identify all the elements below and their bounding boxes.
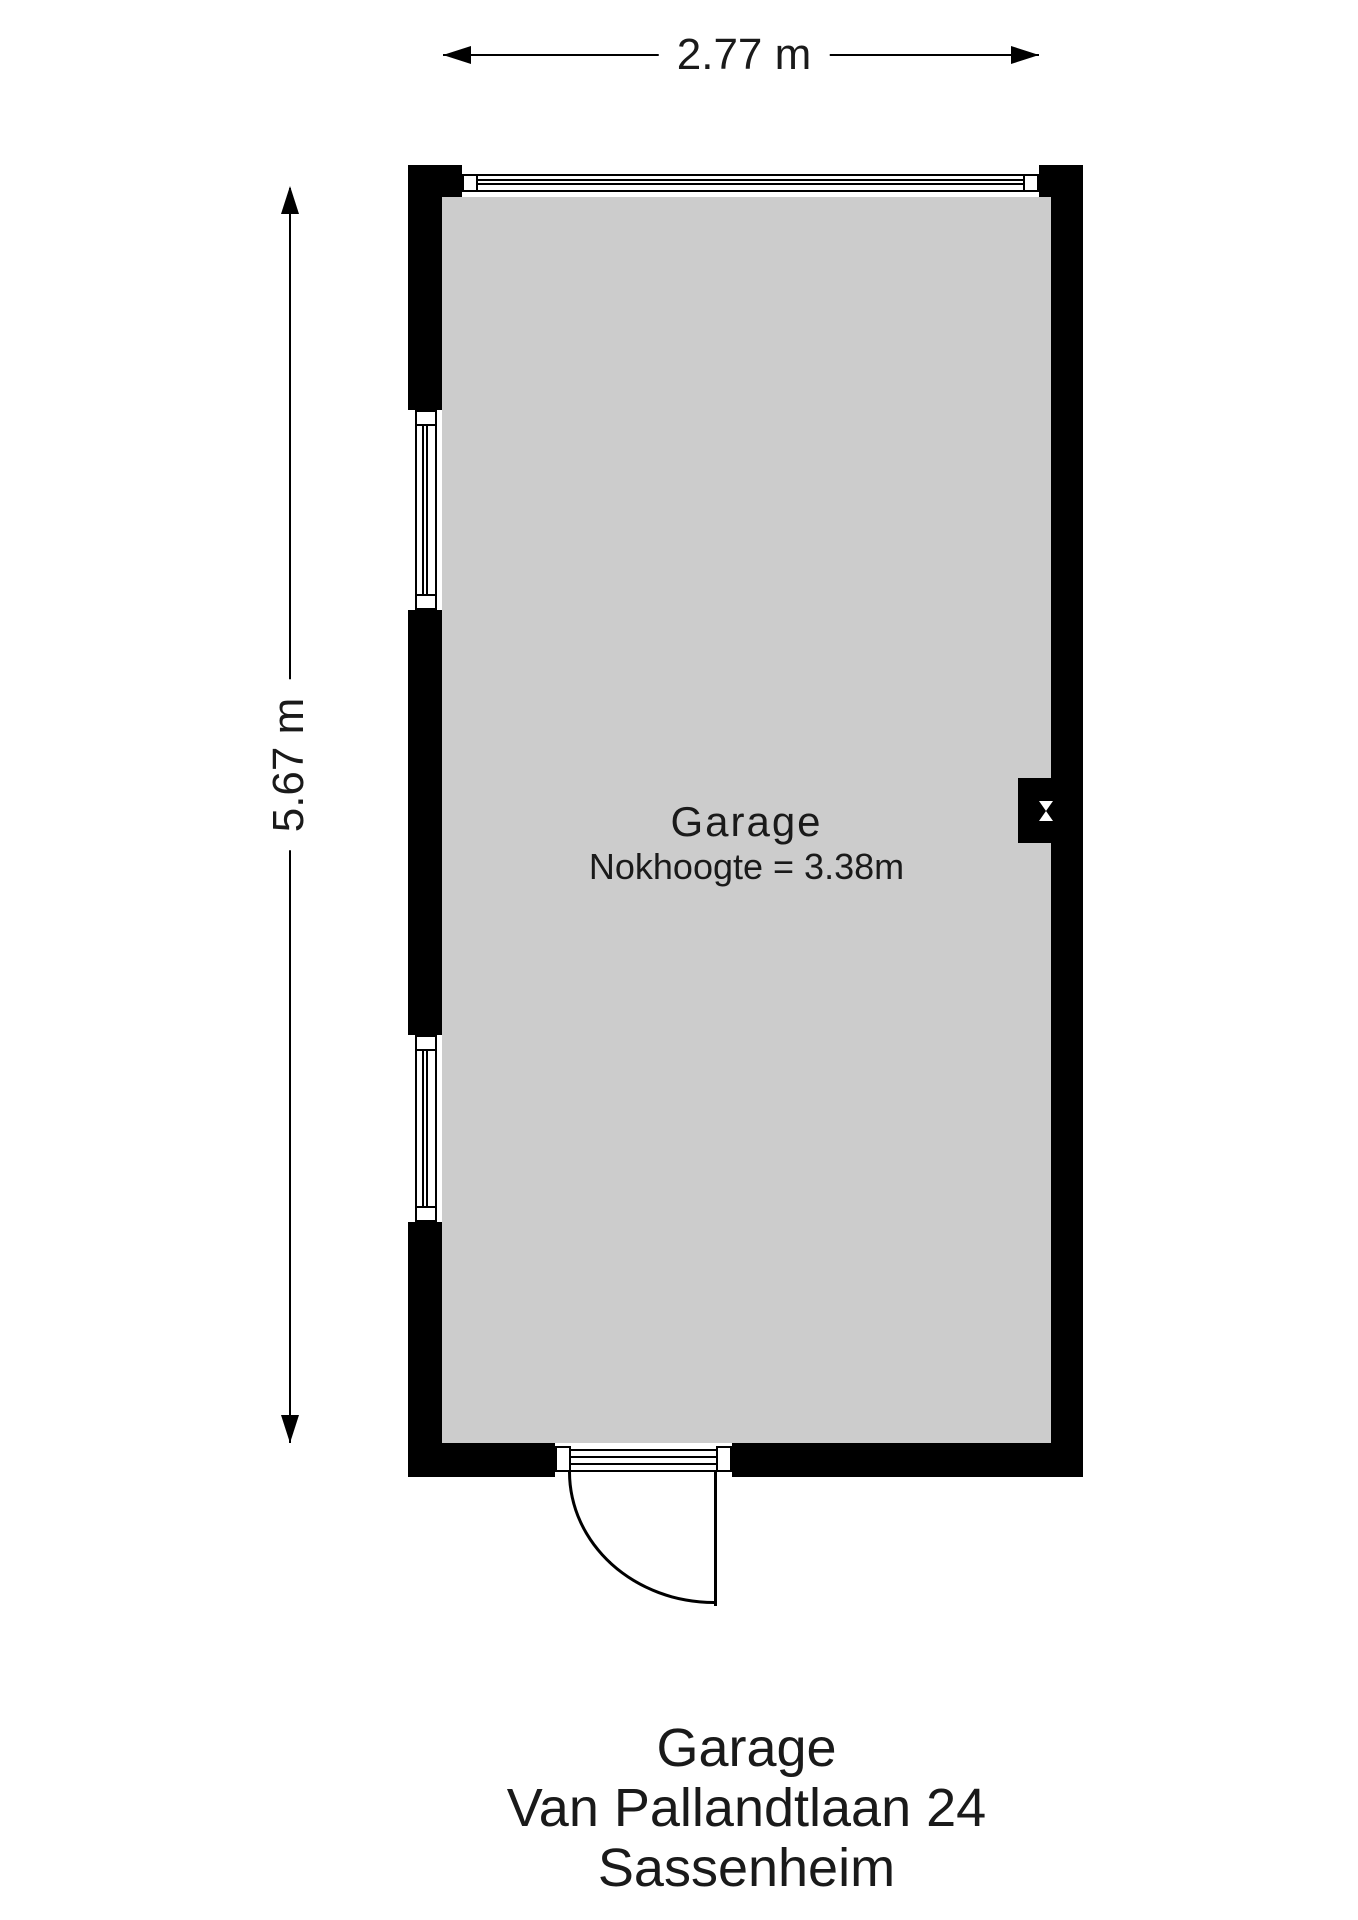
door-threshold [571, 1449, 716, 1472]
door-post-right [716, 1446, 732, 1472]
wall-left-middle [408, 610, 442, 1035]
window-glass-line [426, 426, 428, 594]
window-glass-line [422, 426, 424, 594]
window-glass-line [422, 1051, 424, 1206]
room-name-label: Garage [442, 799, 1051, 845]
window-glass-line [426, 1051, 428, 1206]
window-top [462, 174, 1039, 192]
wall-bottom-right-segment [732, 1443, 1083, 1477]
arrowhead-right-icon [1011, 46, 1039, 64]
door-leaf [714, 1472, 717, 1606]
width-dimension-label: 2.77 m [659, 33, 830, 77]
window-glass-line [478, 183, 1023, 185]
room-label-group: Garage Nokhoogte = 3.38m [442, 799, 1051, 887]
wall-bottom-left-segment [408, 1443, 555, 1477]
arrowhead-down-icon [281, 1415, 299, 1443]
arrowhead-left-icon [443, 46, 471, 64]
window-frame-bar [1023, 176, 1025, 190]
window-glass-line [478, 179, 1023, 181]
window-left-lower [415, 1035, 437, 1222]
door-post-left [555, 1446, 571, 1472]
floorplan-canvas: { "dimensions": { "width_label": "2.77 m… [0, 0, 1358, 1920]
caption-street: Van Pallandtlaan 24 [442, 1778, 1051, 1838]
height-dimension-label: 5.67 m [267, 680, 311, 851]
caption-building: Garage [442, 1718, 1051, 1778]
caption-city: Sassenheim [442, 1838, 1051, 1898]
window-frame-bar [417, 594, 435, 596]
wall-left-upper [408, 165, 442, 410]
wall-corner-top-left [408, 165, 462, 197]
window-left-upper [415, 410, 437, 610]
window-frame-bar [417, 1206, 435, 1208]
room-ridge-height-label: Nokhoogte = 3.38m [442, 847, 1051, 887]
wall-left-lower [408, 1222, 442, 1477]
floorplan: Garage Nokhoogte = 3.38m [0, 0, 1358, 1920]
caption: Garage Van Pallandtlaan 24 Sassenheim [442, 1718, 1051, 1898]
door-swing-arc [568, 1472, 714, 1604]
arrowhead-up-icon [281, 186, 299, 214]
